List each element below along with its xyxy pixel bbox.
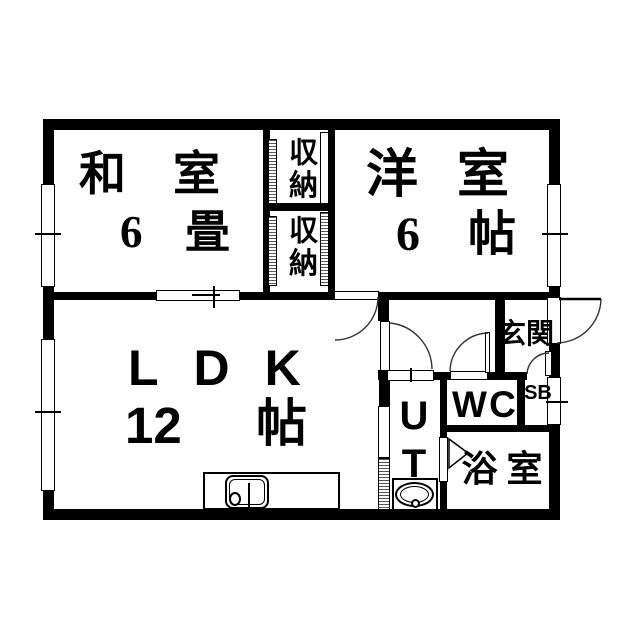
door-arc-front-door: [557, 299, 601, 343]
room-size-number: 12: [125, 399, 182, 453]
room-size-yoshitsu: 6帖: [396, 210, 516, 260]
room-label-ldk: LDK: [128, 342, 336, 395]
room-label-shoebox: SB: [521, 383, 555, 404]
room-size-number: 6: [120, 209, 143, 256]
room-label-entrance: 玄関: [496, 320, 556, 349]
door-arc-yoshitsu: [335, 297, 378, 340]
room-size-number: 6: [396, 210, 420, 260]
room-size-unit: 帖: [256, 399, 307, 453]
room-label-ut: UT: [393, 394, 435, 480]
room-label-closet-upper: 収納: [285, 137, 315, 207]
room-size-ldk: 12帖: [125, 399, 307, 453]
door-arc-shoebox: [527, 353, 549, 374]
room-label-bath: 浴室: [448, 451, 556, 489]
room-label-washitsu: 和室: [79, 151, 267, 200]
room-size-unit: 畳: [185, 209, 230, 256]
door-arc-hall-ldk: [390, 323, 432, 369]
floor-plan: 和室 6畳 収納 収納 洋室 6帖 LDK 12帖 UT WC SB 浴室 玄関: [0, 0, 639, 640]
room-size-washitsu: 6畳: [120, 209, 230, 256]
door-arc-wc: [450, 333, 488, 371]
room-label-yoshitsu: 洋室: [366, 149, 548, 204]
room-size-unit: 帖: [468, 210, 516, 260]
room-label-wc: WC: [442, 386, 528, 425]
room-label-closet-lower: 収納: [285, 215, 315, 285]
